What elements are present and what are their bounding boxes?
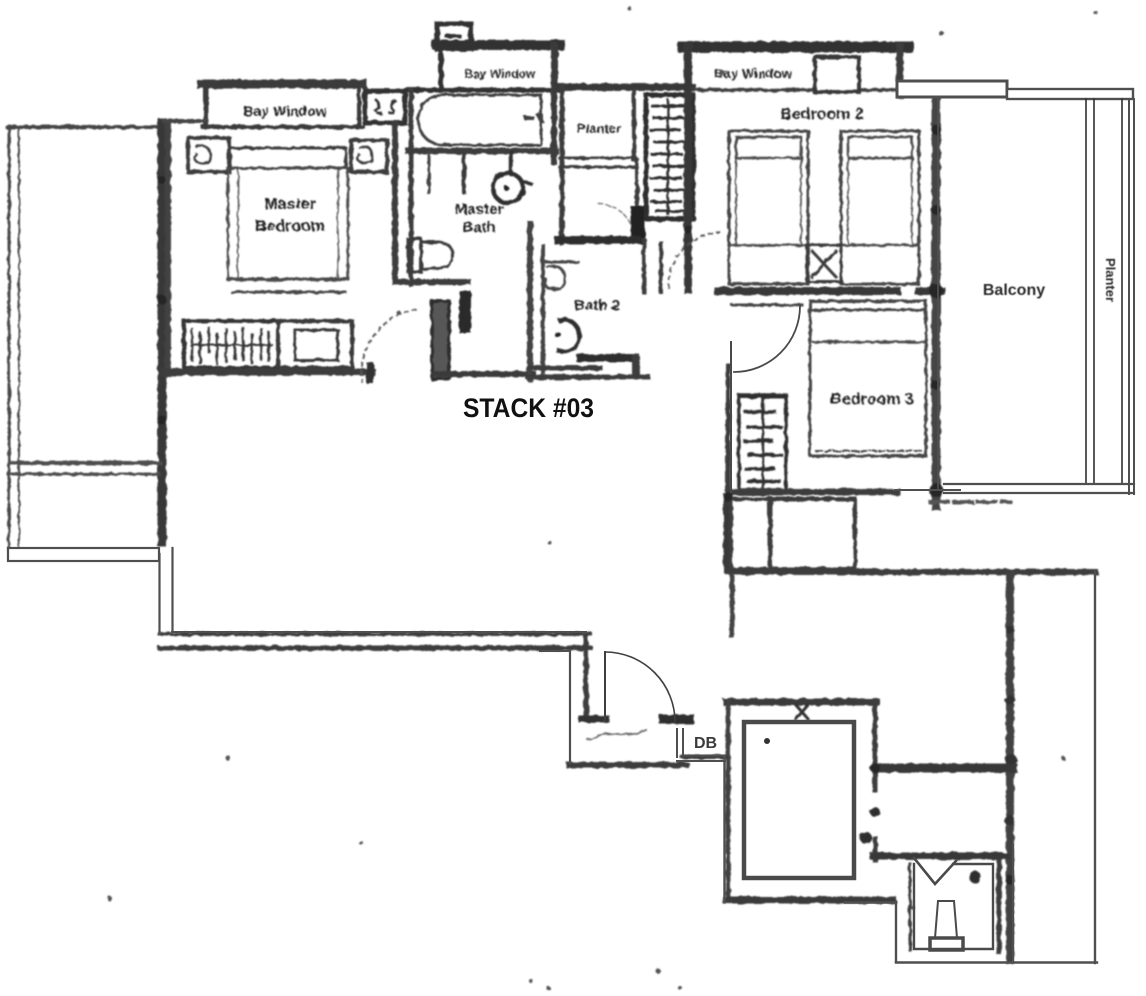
svg-text:Bedroom 2: Bedroom 2 <box>780 106 864 123</box>
svg-text:STACK #03: STACK #03 <box>463 393 594 423</box>
svg-text:Bedroom 3: Bedroom 3 <box>830 391 914 408</box>
svg-text:Bay Window: Bay Window <box>464 67 536 81</box>
svg-text:Bath 2: Bath 2 <box>574 297 620 314</box>
svg-text:Bay Window: Bay Window <box>243 103 326 119</box>
svg-text:Balcony: Balcony <box>983 282 1045 299</box>
svg-text:Planter: Planter <box>1103 258 1118 302</box>
svg-text:Bath: Bath <box>462 219 495 236</box>
svg-text:Bay Window: Bay Window <box>714 66 792 81</box>
svg-text:DB: DB <box>694 735 717 752</box>
svg-text:Master: Master <box>264 196 316 213</box>
svg-text:Planter: Planter <box>577 121 621 136</box>
svg-text:Master: Master <box>455 201 504 218</box>
svg-text:Bedroom: Bedroom <box>255 218 325 235</box>
